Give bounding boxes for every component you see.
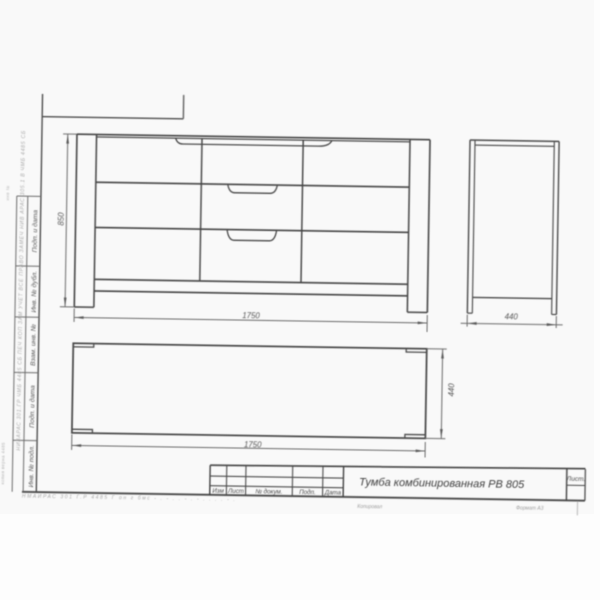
- svg-text:440: 440: [447, 383, 456, 397]
- svg-text:1750: 1750: [242, 311, 260, 320]
- svg-text:Лист.: Лист.: [566, 476, 586, 483]
- svg-text:Инв. № дубл.: Инв. № дубл.: [30, 271, 39, 313]
- svg-text:Подп. и дата: Подп. и дата: [28, 385, 37, 428]
- svg-text:440: 440: [505, 312, 519, 321]
- svg-text:Инв. № подл.: Инв. № подл.: [27, 445, 36, 487]
- svg-text:Подп. и дата: Подп. и дата: [31, 210, 40, 253]
- svg-text:Формат А3: Формат А3: [516, 505, 544, 511]
- svg-text:Изм: Изм: [212, 488, 224, 495]
- svg-text:инв №: инв №: [5, 185, 10, 200]
- svg-text:850: 850: [57, 212, 66, 226]
- svg-text:Взам. инв. №: Взам. инв. №: [30, 324, 38, 366]
- svg-text:1750: 1750: [244, 440, 262, 449]
- svg-text:Подп.: Подп.: [299, 489, 316, 496]
- svg-text:Копировал: Копировал: [357, 504, 382, 510]
- svg-text:Лист: Лист: [227, 488, 244, 495]
- svg-text:копия верна 4485: копия верна 4485: [0, 442, 6, 484]
- svg-text:№ докум.: № докум.: [255, 488, 282, 495]
- svg-text:Дата: Дата: [324, 489, 342, 496]
